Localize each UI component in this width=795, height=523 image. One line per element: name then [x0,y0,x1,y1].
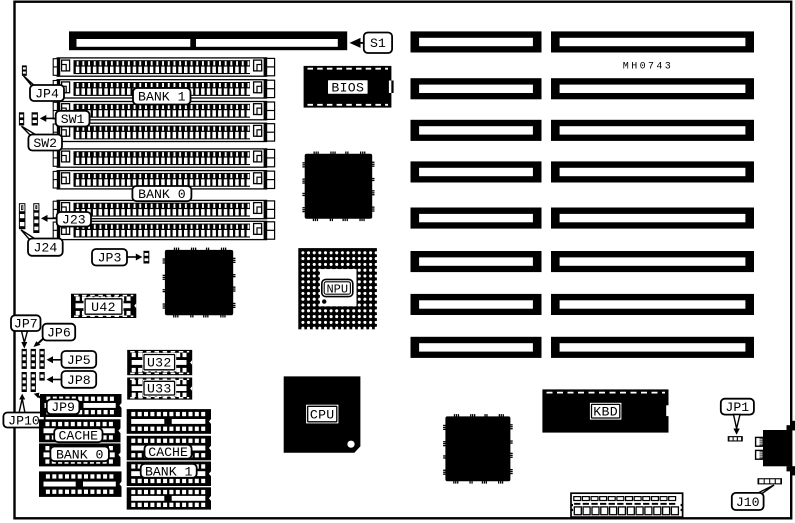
svg-text:U42: U42 [91,300,116,315]
svg-text:JP6: JP6 [47,326,71,341]
svg-text:KBD: KBD [593,405,618,420]
svg-text:J10: J10 [736,495,760,510]
svg-text:SW1: SW1 [61,112,85,127]
svg-text:NPU: NPU [326,282,348,296]
svg-text:BANK 0: BANK 0 [56,447,104,462]
svg-text:MH0743: MH0743 [623,62,673,73]
svg-text:CPU: CPU [310,408,335,423]
svg-text:JP8: JP8 [67,373,91,388]
svg-text:BANK 1: BANK 1 [145,464,193,479]
svg-text:J24: J24 [34,241,58,256]
svg-text:JP1: JP1 [725,400,749,415]
svg-text:JP7: JP7 [14,317,38,332]
svg-text:JP9: JP9 [51,400,75,415]
svg-text:U32: U32 [147,356,172,371]
svg-text:CACHE: CACHE [59,429,99,444]
svg-text:JP3: JP3 [98,251,122,266]
svg-text:S1: S1 [370,36,386,51]
svg-text:J23: J23 [62,213,86,228]
svg-text:U33: U33 [147,382,172,397]
svg-text:JP4: JP4 [35,87,59,102]
svg-text:JP10: JP10 [8,414,40,429]
svg-text:BIOS: BIOS [331,80,364,95]
svg-text:JP5: JP5 [67,353,91,368]
svg-text:SW2: SW2 [33,136,57,151]
svg-text:BANK 1: BANK 1 [138,90,186,105]
svg-text:BANK 0: BANK 0 [138,187,186,202]
svg-text:CACHE: CACHE [148,445,188,460]
